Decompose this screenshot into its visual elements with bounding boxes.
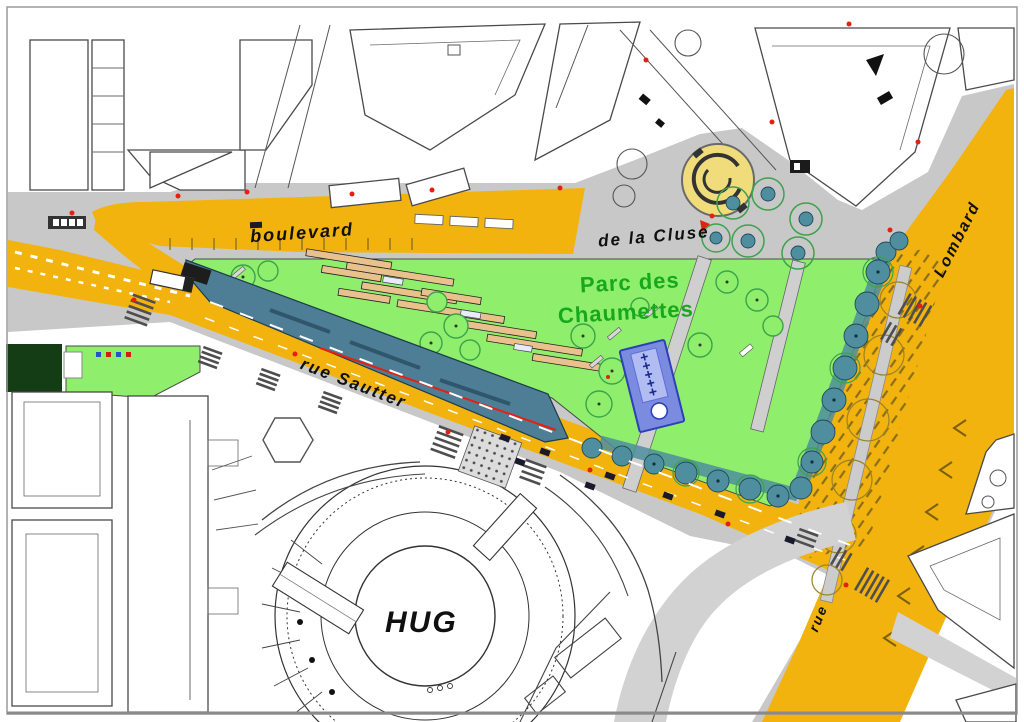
buildings-top-left	[30, 40, 312, 190]
label-parc-line1: Parc des	[579, 267, 680, 297]
buildings-top-center	[255, 22, 640, 208]
buildings-bottom-left	[12, 392, 258, 712]
map-canvas: boulevard de la Cluse rue Sautter Lombar…	[0, 0, 1024, 722]
hedge	[6, 344, 62, 392]
hug-hospital	[255, 462, 676, 722]
small-building	[64, 352, 82, 378]
hexagon-structure	[263, 418, 313, 462]
city-plan-map: boulevard de la Cluse rue Sautter Lombar…	[0, 0, 1024, 722]
label-hug: HUG	[385, 606, 458, 639]
green-strip	[66, 346, 200, 398]
park-chaumettes	[190, 259, 886, 506]
